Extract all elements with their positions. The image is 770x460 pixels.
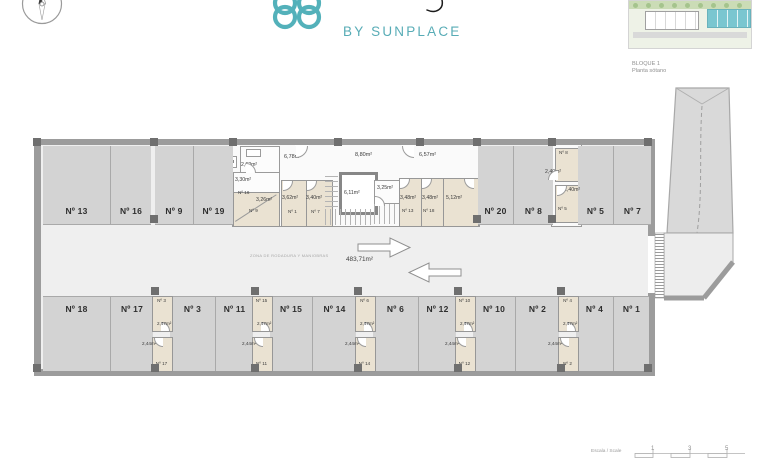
parking-stall: Nº 7 xyxy=(613,146,651,225)
storage-area: 2,47m² xyxy=(563,321,577,326)
tree-icon xyxy=(646,3,651,8)
room-label-st_n5: Nº 5 xyxy=(558,206,567,211)
pillar xyxy=(33,364,41,372)
pillar xyxy=(150,215,158,223)
compass-north-icon xyxy=(20,0,64,30)
parking-stall-label: Nº 19 xyxy=(194,206,233,216)
wall-left xyxy=(34,139,41,376)
pillar xyxy=(151,287,159,295)
pillar xyxy=(644,364,652,372)
block-title: BLOQUE 1 xyxy=(632,61,660,67)
wall-top xyxy=(34,139,652,145)
pillar xyxy=(229,138,237,146)
room-label-st_n13: Nº 13 xyxy=(402,208,413,213)
storage-area: 2,47m² xyxy=(360,321,374,326)
storage-area: 2,47m² xyxy=(157,321,171,326)
storage-area: 2,47m² xyxy=(257,321,271,326)
plan-sheet: BY SUNPLACE BLOQUE 1 Planta sótano ZONA … xyxy=(0,0,770,460)
room-label-corr_657: 6,57m² xyxy=(419,152,436,158)
site-map xyxy=(628,0,752,49)
parking-stall-label: Nº 12 xyxy=(419,304,456,314)
parking-stall-label: Nº 18 xyxy=(43,304,110,314)
parking-stall-label: Nº 20 xyxy=(478,206,513,216)
parking-stall: Nº 2 xyxy=(515,296,559,371)
parking-stall: Nº 5 xyxy=(578,146,613,225)
pillar xyxy=(33,138,41,146)
room-label-st_348a: 3,48m² xyxy=(400,195,416,201)
pillar xyxy=(644,138,652,146)
site-map-trees xyxy=(629,1,751,9)
room-label-st_348b: 3,48m² xyxy=(422,195,438,201)
pillar xyxy=(454,287,462,295)
brand-subtitle: BY SUNPLACE xyxy=(343,24,462,39)
tree-icon xyxy=(711,3,716,8)
room-label-room_330: 3,30m² xyxy=(235,177,251,183)
stair-flight-bottom xyxy=(325,209,372,225)
storage-number: Nº 15 xyxy=(252,298,271,303)
room-label-room_326: 3,26m² xyxy=(256,197,272,203)
storage-number: Nº 6 xyxy=(355,298,374,303)
room-label-st_340: 3,40m² xyxy=(306,195,322,201)
room-label-lift_611: 6,11m² xyxy=(344,190,360,196)
tree-icon xyxy=(685,3,690,8)
parking-stall-label: Nº 5 xyxy=(578,206,613,216)
tree-icon xyxy=(698,3,703,8)
parking-stall: Nº 14 xyxy=(312,296,356,371)
site-map-road xyxy=(633,32,747,38)
brand-knot-icon xyxy=(268,0,326,30)
arrow-left-icon xyxy=(409,263,461,282)
tree-icon xyxy=(633,3,638,8)
parking-stall-label: Nº 1 xyxy=(614,304,649,314)
svg-text:1: 1 xyxy=(651,446,655,452)
storage-area: 2,47m² xyxy=(460,321,474,326)
parking-stall: Nº 4 xyxy=(576,296,613,371)
pillar xyxy=(334,138,342,146)
pillar xyxy=(548,215,556,223)
parking-stall-label: Nº 11 xyxy=(216,304,253,314)
access-ramp xyxy=(648,78,770,310)
parking-stall-label: Nº 3 xyxy=(170,304,215,314)
parking-stall-label: Nº 13 xyxy=(43,206,110,216)
parking-stall: Nº 3 xyxy=(170,296,215,371)
parking-stall: Nº 19 xyxy=(193,146,233,225)
tree-icon xyxy=(724,3,729,8)
storage-number: Nº 4 xyxy=(558,298,577,303)
room-label-st_n9: Nº 9 xyxy=(249,208,258,213)
room-label-st_n18: Nº 18 xyxy=(423,208,434,213)
room-label-st_n7: Nº 7 xyxy=(311,209,320,214)
parking-stall: Nº 6 xyxy=(373,296,418,371)
pillar xyxy=(151,364,159,372)
parking-stall: Nº 13 xyxy=(43,146,110,225)
storage-number: Nº 10 xyxy=(455,298,474,303)
parking-stall: Nº 8 xyxy=(513,146,553,225)
pillar xyxy=(473,138,481,146)
parking-stall-label: Nº 4 xyxy=(576,304,613,314)
stair-flight-left xyxy=(325,174,338,207)
tree-icon xyxy=(737,3,742,8)
brand-script-tail xyxy=(420,0,446,16)
pillar xyxy=(416,138,424,146)
site-map-building-white xyxy=(645,11,699,30)
room-label-st_n1: Nº 1 xyxy=(288,209,297,214)
parking-stall-label: Nº 15 xyxy=(270,304,312,314)
pillar xyxy=(354,287,362,295)
pillar xyxy=(454,364,462,372)
room-label-st_512: 5,12m² xyxy=(446,195,462,201)
parking-stall: Nº 16 xyxy=(110,146,151,225)
pillar xyxy=(251,364,259,372)
parking-stall-label: Nº 16 xyxy=(111,206,151,216)
parking-stall-label: Nº 7 xyxy=(614,206,651,216)
parking-stall: Nº 20 xyxy=(478,146,513,225)
parking-stall-label: Nº 10 xyxy=(473,304,515,314)
parking-stall: Nº 11 xyxy=(215,296,253,371)
room-label-corr_880: 8,80m² xyxy=(355,152,372,158)
pillar xyxy=(473,215,481,223)
parking-stall: Nº 17 xyxy=(110,296,153,371)
circulation-arrows xyxy=(352,233,467,285)
pillar xyxy=(548,138,556,146)
room-label-st_362: 3,62m² xyxy=(282,195,298,201)
svg-text:3: 3 xyxy=(688,446,692,452)
tree-icon xyxy=(672,3,677,8)
tree-icon xyxy=(659,3,664,8)
parking-stall-label: Nº 14 xyxy=(313,304,356,314)
pillar xyxy=(557,287,565,295)
room-label-st_n16: Nº 16 xyxy=(238,190,249,195)
site-map-building-highlight xyxy=(707,9,751,28)
parking-stall: Nº 18 xyxy=(43,296,110,371)
stair-flight-right xyxy=(374,204,398,224)
room-262-fixture xyxy=(246,149,261,157)
pillar xyxy=(557,364,565,372)
parking-stall: Nº 10 xyxy=(473,296,515,371)
parking-stall: Nº 9 xyxy=(155,146,193,225)
parking-stall: Nº 1 xyxy=(613,296,649,371)
room-label-room_325: 3,25m² xyxy=(377,185,393,191)
storage-number: Nº 3 xyxy=(152,298,171,303)
scale-bar: 1 3 5 xyxy=(630,444,750,458)
parking-stall-label: Nº 9 xyxy=(155,206,193,216)
parking-stall: Nº 12 xyxy=(418,296,456,371)
parking-stall: Nº 15 xyxy=(270,296,312,371)
svg-text:5: 5 xyxy=(725,446,729,452)
pillar xyxy=(150,138,158,146)
parking-stall-label: Nº 6 xyxy=(373,304,418,314)
scale-label: Escala / Scale xyxy=(591,449,621,454)
floor-title: Planta sótano xyxy=(632,68,666,74)
parking-stall-label: Nº 17 xyxy=(111,304,153,314)
aisle-note: ZONA DE RODADURA Y MANIOBRAS xyxy=(250,253,329,258)
arrow-right-icon xyxy=(358,238,410,257)
pillar xyxy=(354,364,362,372)
room-label-st_n8: Nº 8 xyxy=(559,150,568,155)
parking-stall-label: Nº 2 xyxy=(516,304,559,314)
pillar xyxy=(251,287,259,295)
